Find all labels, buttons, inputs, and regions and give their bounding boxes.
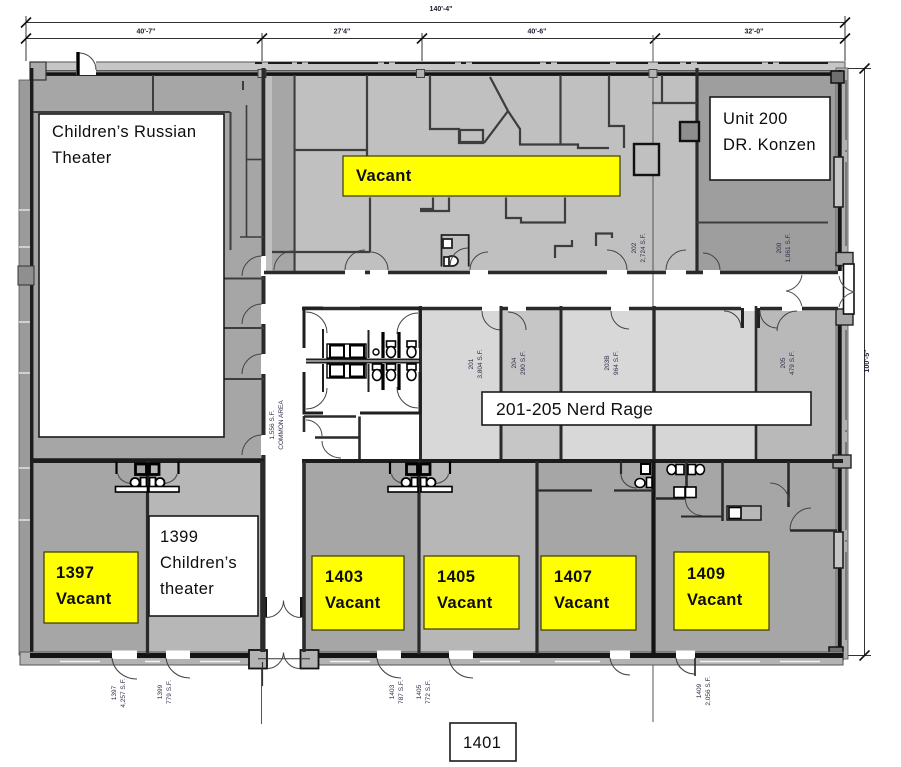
svg-text:201-205 Nerd Rage: 201-205 Nerd Rage <box>496 399 653 419</box>
svg-text:1407: 1407 <box>554 568 592 586</box>
svg-text:Vacant: Vacant <box>687 591 743 609</box>
svg-text:1397: 1397 <box>111 685 118 700</box>
svg-text:27'4": 27'4" <box>334 29 351 36</box>
svg-text:100'-5": 100'-5" <box>864 350 871 373</box>
svg-text:Theater: Theater <box>52 149 112 167</box>
svg-text:964 S.F.: 964 S.F. <box>613 351 620 375</box>
svg-text:1,556 S.F.: 1,556 S.F. <box>269 410 276 439</box>
svg-text:1399: 1399 <box>160 528 198 546</box>
svg-text:COMMON AREA: COMMON AREA <box>278 400 285 450</box>
svg-text:1399: 1399 <box>157 684 164 699</box>
svg-text:203B: 203B <box>604 355 611 370</box>
svg-text:1409: 1409 <box>696 683 703 698</box>
svg-text:Vacant: Vacant <box>325 594 381 612</box>
svg-text:DR. Konzen: DR. Konzen <box>723 136 816 154</box>
svg-text:Children’s: Children’s <box>160 554 237 572</box>
svg-text:1,061 S.F.: 1,061 S.F. <box>785 233 792 262</box>
svg-text:205: 205 <box>780 357 787 368</box>
svg-text:Vacant: Vacant <box>356 167 412 185</box>
svg-text:40'-6": 40'-6" <box>528 29 547 36</box>
svg-text:772 S.F.: 772 S.F. <box>425 680 432 704</box>
svg-text:3,804 S.F.: 3,804 S.F. <box>477 349 484 378</box>
svg-text:204: 204 <box>511 357 518 368</box>
svg-text:Children’s Russian: Children’s Russian <box>52 123 196 141</box>
svg-text:theater: theater <box>160 580 214 598</box>
svg-text:1405: 1405 <box>437 568 475 586</box>
svg-text:1403: 1403 <box>389 684 396 699</box>
svg-text:787 S.F.: 787 S.F. <box>398 680 405 704</box>
svg-text:1405: 1405 <box>416 684 423 699</box>
svg-text:2,056 S.F.: 2,056 S.F. <box>705 676 712 705</box>
svg-text:Vacant: Vacant <box>554 594 610 612</box>
svg-text:479 S.F.: 479 S.F. <box>789 351 796 375</box>
svg-text:2,724 S.F.: 2,724 S.F. <box>640 233 647 262</box>
svg-text:140'-4": 140'-4" <box>430 6 453 13</box>
svg-text:201: 201 <box>468 358 475 369</box>
svg-text:200: 200 <box>776 242 783 253</box>
svg-text:Vacant: Vacant <box>437 594 493 612</box>
svg-text:40'-7": 40'-7" <box>137 29 156 36</box>
svg-text:Vacant: Vacant <box>56 590 112 608</box>
svg-text:1403: 1403 <box>325 568 363 586</box>
svg-text:1397: 1397 <box>56 564 94 582</box>
svg-text:Unit 200: Unit 200 <box>723 110 788 128</box>
svg-text:779 S.F.: 779 S.F. <box>166 680 173 704</box>
svg-text:32'-0": 32'-0" <box>745 29 764 36</box>
svg-text:290 S.F.: 290 S.F. <box>520 351 527 375</box>
svg-text:1409: 1409 <box>687 565 725 583</box>
svg-text:4,257 S.F.: 4,257 S.F. <box>120 678 127 707</box>
svg-text:1401: 1401 <box>463 734 501 752</box>
svg-text:202: 202 <box>631 242 638 253</box>
